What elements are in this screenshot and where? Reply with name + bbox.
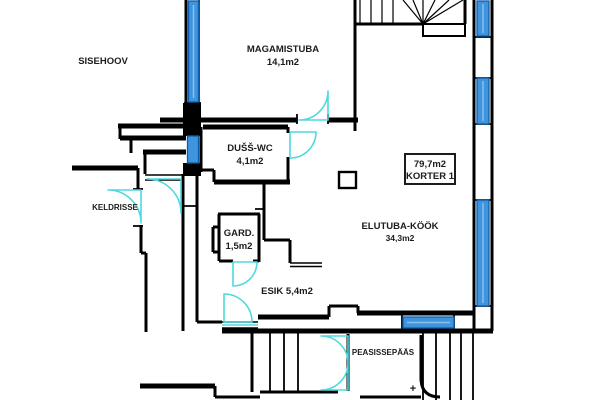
room-label-peasissepaas: PEASISSEPÄÄS: [352, 348, 415, 357]
door-arc-bedroom: [299, 91, 328, 120]
room-area-dusswc: 4,1m2: [237, 156, 264, 167]
room-label-keldrisse: KELDRISSE: [92, 203, 138, 212]
room-area-magamistuba: 14,1m2: [267, 57, 299, 68]
floor-plan: SISEHOOV MAGAMISTUBA 14,1m2 DUŠŠ-WC 4,1m…: [0, 0, 600, 400]
door-arc-gard: [233, 262, 257, 286]
room-label-esik: ESIK 5,4m2: [261, 286, 313, 297]
stair-landing: [423, 24, 465, 36]
room-label-dusswc: DUŠŠ-WC: [227, 142, 273, 154]
door-jamb-ticks: [133, 114, 328, 226]
room-label-sisehoov: SISEHOOV: [78, 56, 128, 67]
apartment-unit: KORTER 1: [406, 171, 455, 182]
counter-line: [290, 263, 322, 267]
apartment-area: 79,7m2: [414, 159, 446, 170]
room-label-magamistuba: MAGAMISTUBA: [247, 44, 319, 55]
room-area-elutuba: 34,3m2: [386, 233, 415, 243]
door-arc-entrance-upper: [321, 336, 348, 363]
door-arc-esik: [224, 294, 252, 322]
door-arc-courtyard: [147, 179, 181, 213]
door-arc-entrance-lower: [321, 363, 348, 390]
window-icon-dusswc: [188, 136, 199, 163]
room-label-gard: GARD.: [224, 228, 255, 239]
room-label-elutuba: ELUTUBA-KÖÖK: [361, 221, 438, 232]
entrance-stairs-left: [270, 333, 298, 392]
staircase-top: [360, 0, 465, 36]
floor-plan-drawing: SISEHOOV MAGAMISTUBA 14,1m2 DUŠŠ-WC 4,1m…: [0, 0, 600, 400]
room-area-gard: 1,5m2: [226, 241, 253, 252]
plus-mark: +: [410, 383, 416, 395]
door-arc-dusswc: [290, 132, 316, 158]
stair-treads: [360, 0, 463, 24]
entrance-stairs-right: [423, 333, 473, 400]
pillar: [339, 172, 356, 188]
